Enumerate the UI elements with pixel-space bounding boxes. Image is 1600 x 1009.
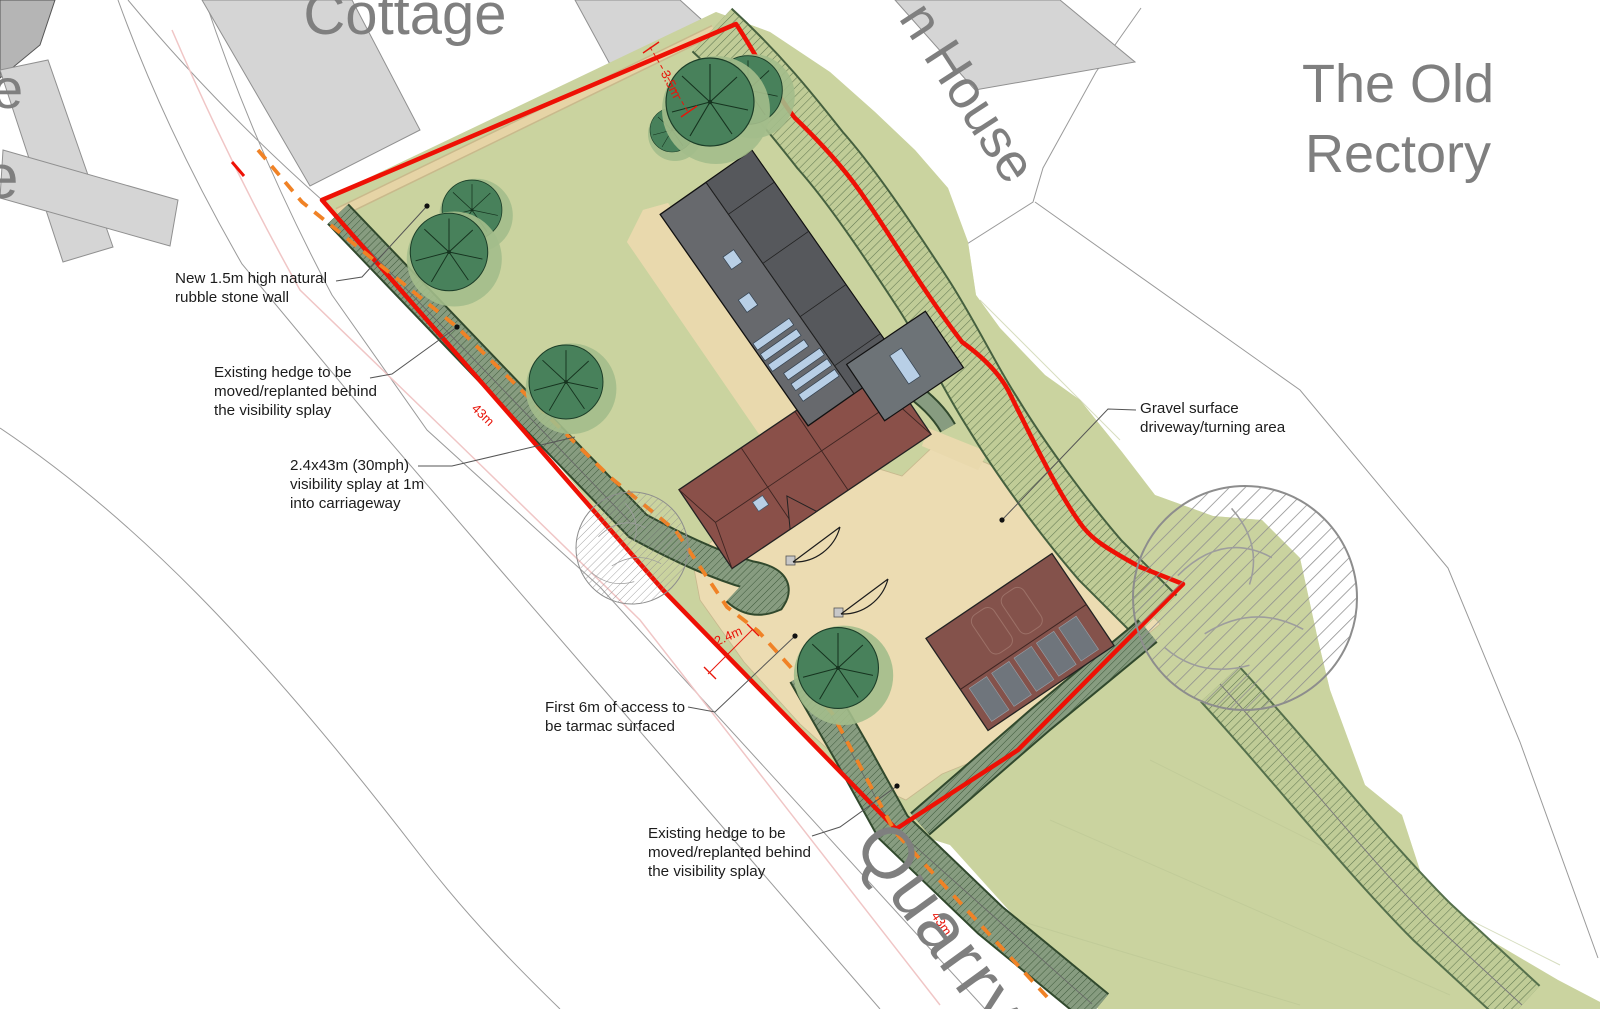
tree-left-main <box>407 212 502 307</box>
track-curve-sw <box>0 428 560 1009</box>
existing-tree-east-hatched <box>1133 486 1357 710</box>
tree-top-main <box>662 56 770 164</box>
label-old-rectory-1: The Old <box>1302 54 1494 114</box>
label-gravel-2: driveway/turning area <box>1140 419 1286 436</box>
label-old-rectory-2: Rectory <box>1305 124 1491 184</box>
label-hedge-lower-1: Existing hedge to be <box>648 825 786 842</box>
label-splay-2: visibility splay at 1m <box>290 476 424 493</box>
label-tarmac-1: First 6m of access to <box>545 699 685 716</box>
label-stone-wall-1: New 1.5m high natural <box>175 270 327 287</box>
label-splay-3: into carriageway <box>290 495 401 512</box>
label-stone-wall-2: rubble stone wall <box>175 289 289 306</box>
label-hedge-upper-2: moved/replanted behind <box>214 383 377 400</box>
label-cottage: Cottage <box>303 0 506 47</box>
label-tarmac-2: be tarmac surfaced <box>545 718 675 735</box>
label-hedge-lower-2: moved/replanted behind <box>648 844 811 861</box>
label-edge-partial-bottom: e <box>0 143 18 212</box>
existing-tree-entrance-hatched <box>576 492 688 604</box>
label-hedge-upper-1: Existing hedge to be <box>214 364 352 381</box>
label-hedge-lower-3: the visibility splay <box>648 863 766 880</box>
tree-mid-left <box>526 343 617 434</box>
site-plan: 3.5m 43m 2.4m 43m New 1.5m high natural … <box>0 0 1600 1009</box>
tree-entrance <box>794 626 893 725</box>
label-splay-1: 2.4x43m (30mph) <box>290 457 409 474</box>
dimension-43m-upper: 43m <box>469 401 498 429</box>
label-gravel-1: Gravel surface <box>1140 400 1239 417</box>
label-edge-partial-top: e <box>0 57 23 120</box>
label-hedge-upper-3: the visibility splay <box>214 402 332 419</box>
site-plan-drawing: 3.5m 43m 2.4m 43m New 1.5m high natural … <box>0 0 1600 1009</box>
